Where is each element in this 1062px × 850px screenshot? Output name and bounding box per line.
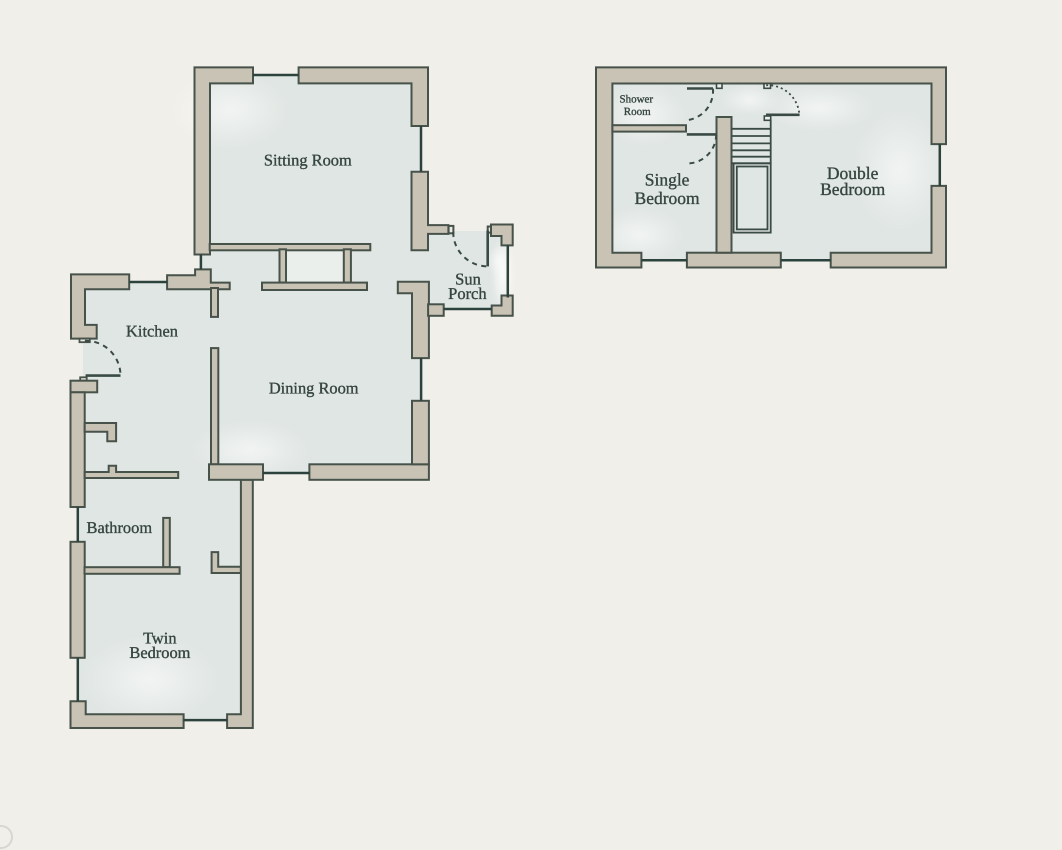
- svg-text:Bedroom: Bedroom: [635, 188, 701, 208]
- svg-text:Dining Room: Dining Room: [269, 378, 359, 397]
- svg-text:Bedroom: Bedroom: [129, 643, 190, 662]
- svg-text:Room: Room: [624, 106, 651, 118]
- svg-text:Bedroom: Bedroom: [820, 179, 886, 199]
- svg-text:Porch: Porch: [448, 284, 487, 303]
- svg-text:Single: Single: [645, 169, 690, 189]
- svg-text:Kitchen: Kitchen: [126, 322, 178, 341]
- svg-text:Bathroom: Bathroom: [87, 518, 153, 537]
- svg-text:Shower: Shower: [619, 94, 653, 106]
- svg-text:Sitting Room: Sitting Room: [264, 151, 352, 170]
